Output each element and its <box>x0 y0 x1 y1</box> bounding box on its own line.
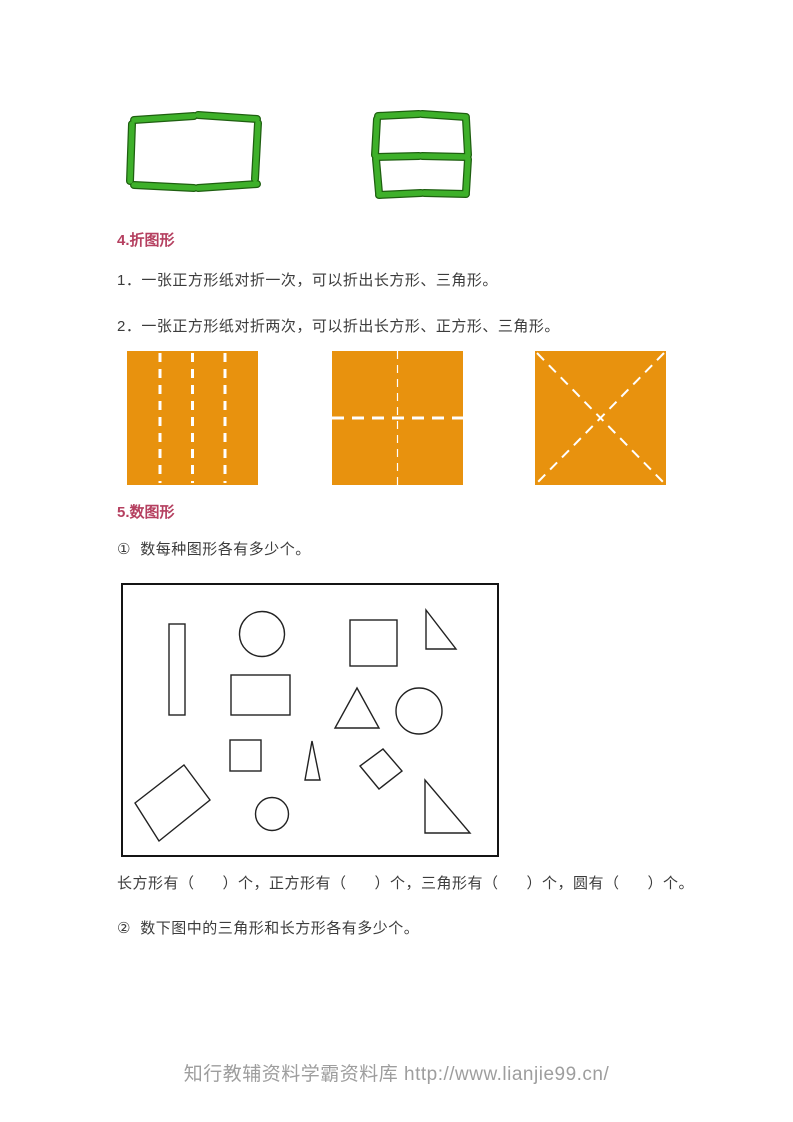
shape-square-small <box>230 740 261 771</box>
shape-diamond <box>360 749 402 789</box>
stick <box>424 193 466 194</box>
shape-triangle-narrow <box>305 741 320 780</box>
shape-tall-rectangle <box>169 624 185 715</box>
section-5-heading: 5.数图形 <box>117 503 175 523</box>
stick <box>255 123 258 179</box>
shape-circle-top <box>240 612 285 657</box>
worksheet-page: 4.折图形 1．一张正方形纸对折一次，可以折出长方形、三角形。 2．一张正方形纸… <box>0 0 793 1122</box>
stick <box>379 193 421 195</box>
statement-2: 2．一张正方形纸对折两次，可以折出长方形、正方形、三角形。 <box>117 317 560 337</box>
fold-square-diagonal <box>535 351 666 485</box>
stick <box>375 119 377 155</box>
shape-right-triangle-bottom <box>425 780 470 833</box>
section-4-heading: 4.折图形 <box>117 231 175 251</box>
stick <box>466 119 468 155</box>
watermark-footer: 知行教辅资料学霸资料库 http://www.lianjie99.cn/ <box>0 1063 793 1087</box>
question-1: ① 数每种图形各有多少个。 <box>117 540 311 560</box>
shape-right-triangle-top <box>426 610 456 649</box>
stick <box>422 156 467 157</box>
stick <box>378 114 419 116</box>
stick <box>422 114 466 117</box>
fold-square-cross <box>332 351 463 485</box>
statement-1: 1．一张正方形纸对折一次，可以折出长方形、三角形。 <box>117 271 498 291</box>
answer-blanks-line: 长方形有（ ）个，正方形有（ ）个，三角形有（ ）个，圆有（ ）个。 <box>117 874 694 894</box>
stick <box>376 156 419 157</box>
stick <box>376 159 379 193</box>
fold-square-vertical <box>127 351 258 485</box>
shape-circle-small <box>256 798 289 831</box>
shapes-counting-box <box>121 583 499 857</box>
matchstick-square-figure <box>366 103 478 203</box>
stick <box>130 124 132 181</box>
stick <box>134 185 194 188</box>
question-2: ② 数下图中的三角形和长方形各有多少个。 <box>117 919 419 939</box>
shape-triangle-middle <box>335 688 379 728</box>
shape-square-top <box>350 620 397 666</box>
matchstick-rectangle-figure <box>124 106 270 198</box>
shape-circle-right <box>396 688 442 734</box>
shape-rectangle-rotated <box>135 765 210 841</box>
stick <box>466 159 468 192</box>
shapes-canvas <box>123 585 497 855</box>
shape-rectangle-middle <box>231 675 290 715</box>
